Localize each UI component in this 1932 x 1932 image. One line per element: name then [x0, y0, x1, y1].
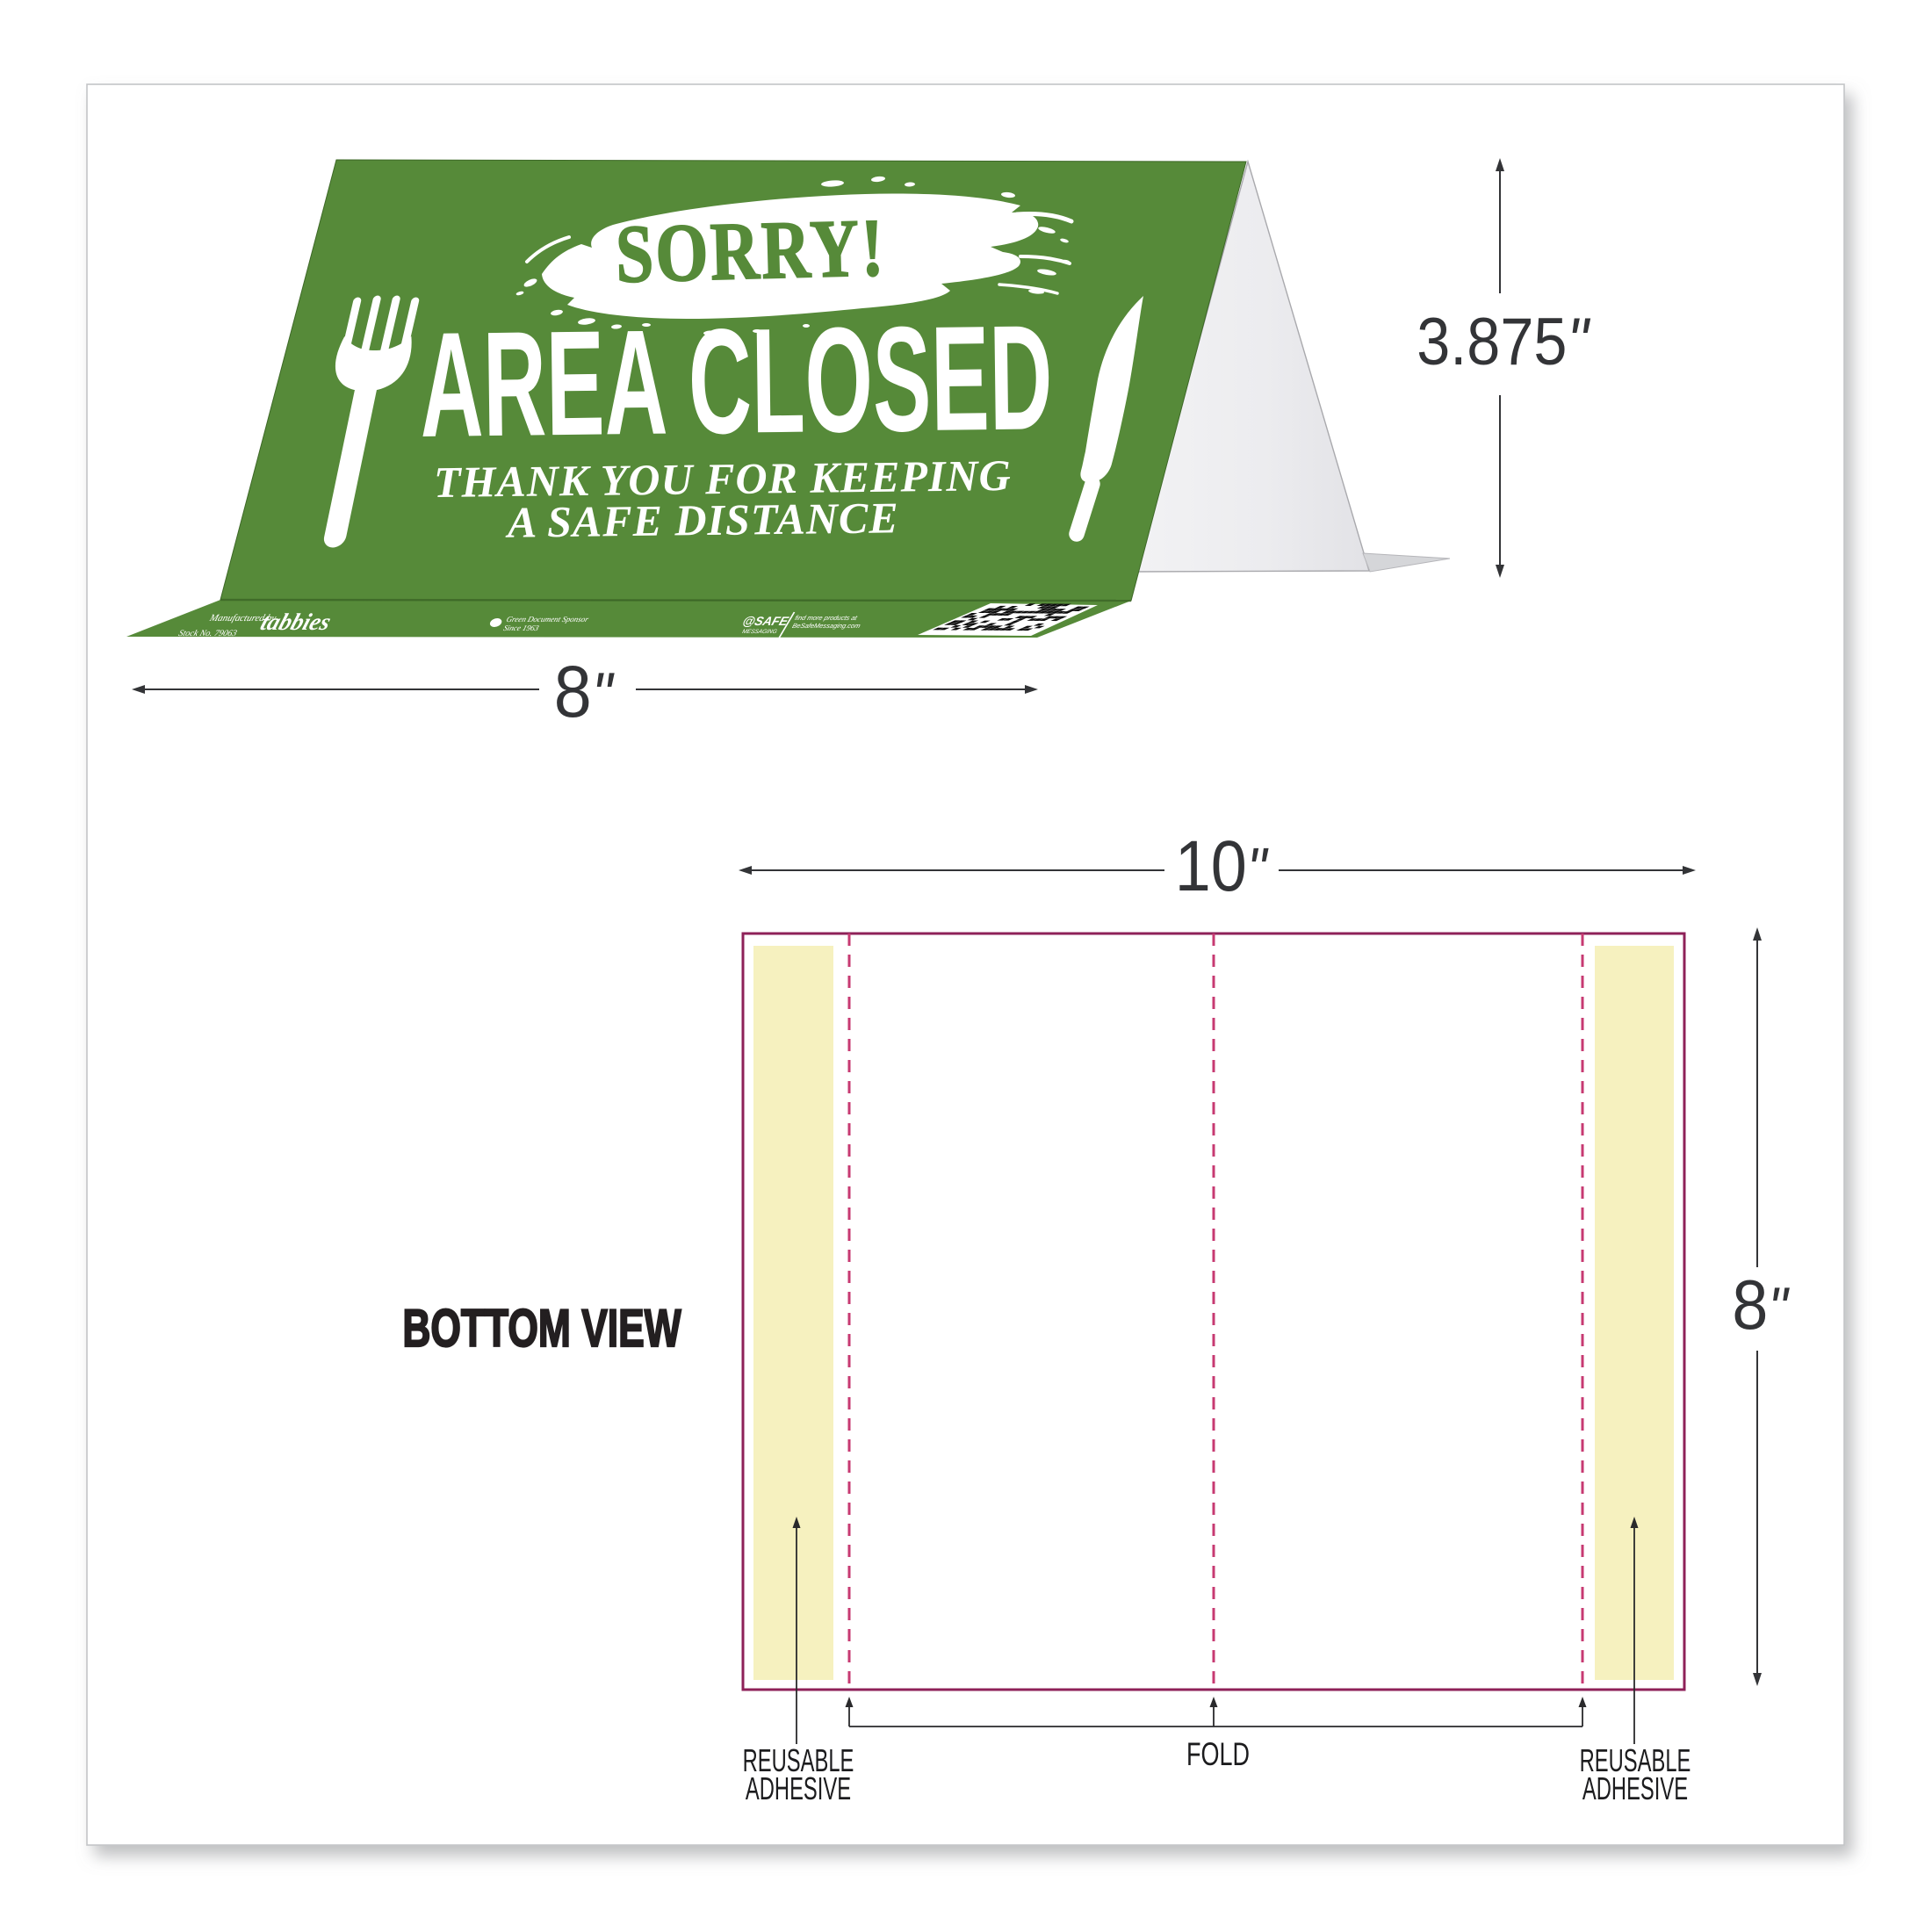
svg-text:8": 8" — [1732, 1265, 1790, 1344]
svg-text:AREA CLOSED: AREA CLOSED — [419, 293, 1053, 468]
svg-text:10": 10" — [1175, 825, 1270, 906]
svg-text:ADHESIVE: ADHESIVE — [746, 1771, 851, 1806]
svg-text:@SAFE: @SAFE — [740, 615, 789, 629]
svg-text:SORRY!: SORRY! — [615, 201, 887, 300]
svg-text:BeSafeMessaging.com: BeSafeMessaging.com — [791, 622, 861, 630]
svg-text:FOLD: FOLD — [1186, 1736, 1250, 1772]
svg-text:3.875": 3.875" — [1417, 306, 1591, 379]
svg-text:MESSAGING: MESSAGING — [741, 629, 778, 635]
svg-text:Green Document Sponsor: Green Document Sponsor — [505, 615, 590, 624]
svg-text:8": 8" — [554, 651, 616, 733]
svg-text:BOTTOM VIEW: BOTTOM VIEW — [402, 1300, 681, 1359]
svg-text:find more products at: find more products at — [794, 614, 859, 622]
svg-text:Since 1963: Since 1963 — [502, 624, 540, 632]
svg-text:A SAFE DISTANCE: A SAFE DISTANCE — [505, 493, 899, 546]
svg-text:ADHESIVE: ADHESIVE — [1582, 1771, 1688, 1806]
svg-text:tabbies: tabbies — [257, 609, 335, 635]
svg-text:Stock No. 79063: Stock No. 79063 — [177, 629, 238, 638]
